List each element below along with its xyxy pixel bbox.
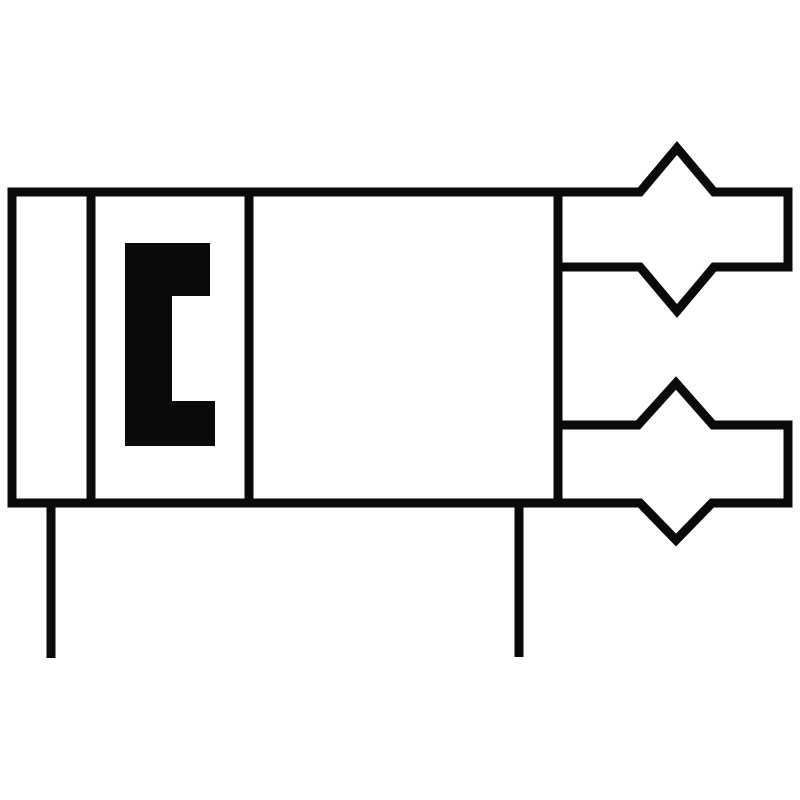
pneumatic-symbol-drawing (0, 0, 800, 800)
lower-coupling-symbol (558, 383, 788, 540)
schematic-canvas (0, 0, 800, 800)
bracket-glyph (125, 243, 215, 446)
upper-coupling-symbol (558, 148, 788, 311)
